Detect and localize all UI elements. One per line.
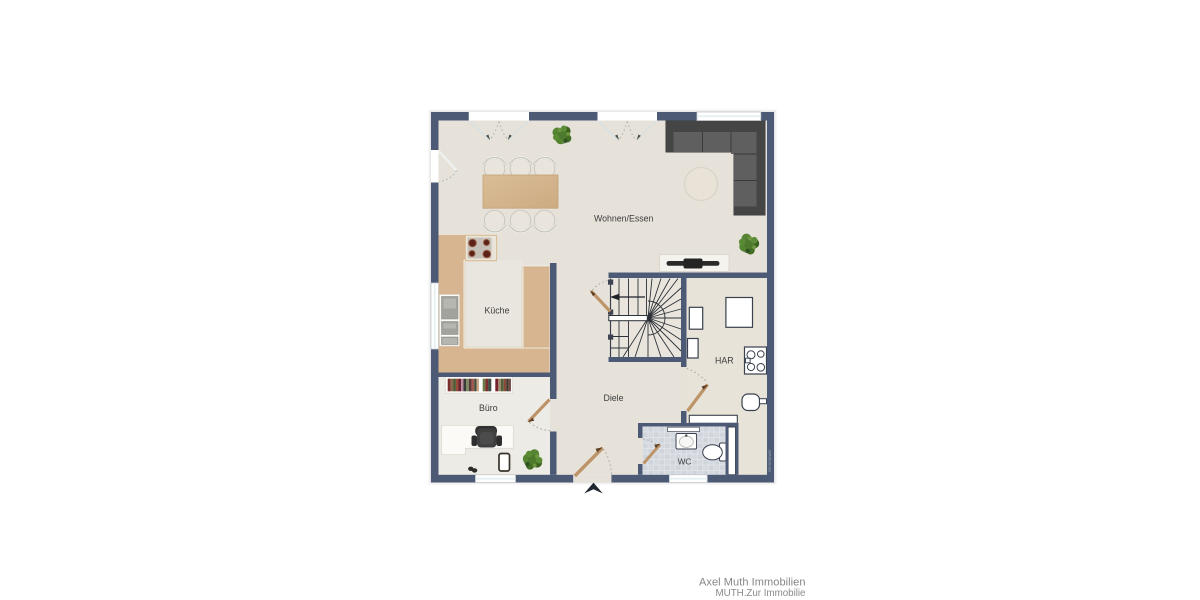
svg-text:Diele: Diele [603,393,623,403]
svg-text:WC: WC [678,456,692,466]
svg-text:MUTH.Zur Immobilie: MUTH.Zur Immobilie [716,588,807,599]
svg-text:HAR: HAR [715,356,734,366]
svg-text:immoviewer: immoviewer [767,449,772,472]
svg-text:Wohnen/Essen: Wohnen/Essen [594,213,654,223]
svg-text:Büro: Büro [479,403,498,413]
svg-text:Axel Muth Immobilien: Axel Muth Immobilien [699,577,806,589]
svg-text:Küche: Küche [485,306,510,316]
